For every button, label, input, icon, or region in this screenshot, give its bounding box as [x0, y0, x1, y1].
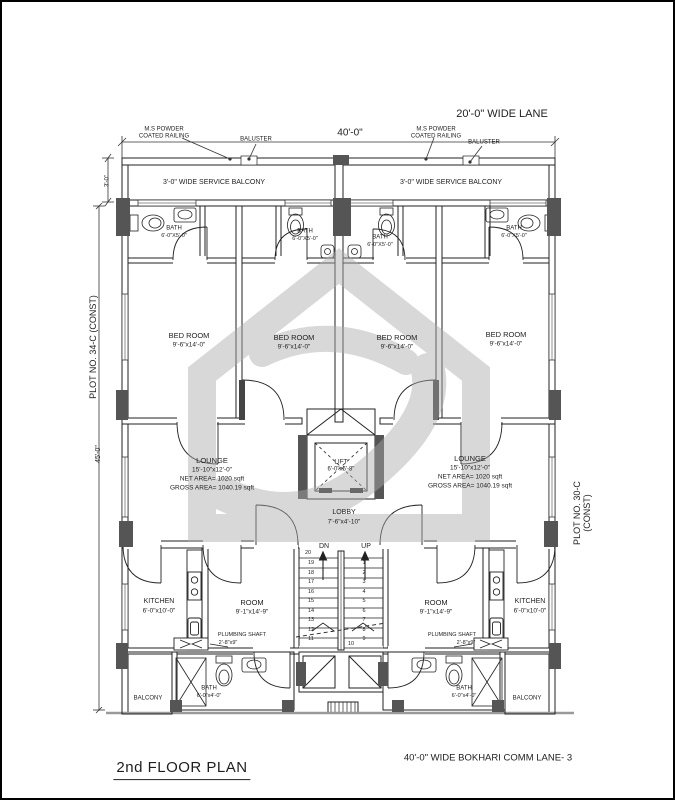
- stair-up-label: UP: [361, 543, 371, 551]
- dim-side-depth: 45'-0": [95, 445, 103, 463]
- wall-bath: [200, 206, 205, 258]
- room-label: ROOM: [240, 599, 263, 607]
- balcony-label: BALCONY: [134, 696, 163, 703]
- balcony-right-outline: [505, 652, 555, 714]
- wall-stair-right: [383, 548, 388, 654]
- lift-column: [298, 435, 307, 499]
- bath-dims: 6'-0"X5'-0": [161, 233, 187, 239]
- service-balcony-label-right: 3'-0" WIDE SERVICE BALCONY: [400, 179, 502, 187]
- balcony-label: BALCONY: [513, 696, 542, 703]
- wall-stair-left: [294, 548, 299, 654]
- lounge-dims: 15'-10"x12'-0": [192, 466, 232, 473]
- bedroom-dims: 9'-6"x14'-0": [490, 340, 523, 347]
- plumbing-shaft-label: PLUMBING SHAFT: [428, 632, 476, 638]
- stair-step-number: 8: [362, 626, 365, 632]
- stair-step-number: 20: [305, 550, 311, 556]
- bedroom-label: BED ROOM: [274, 334, 315, 342]
- bedroom-label: BED ROOM: [377, 334, 418, 342]
- wall-kitchen-left: [202, 548, 208, 650]
- railing-note-left: M.S POWDER COATED RAILING: [139, 126, 189, 139]
- bath-dims: 6'-0"x4'-0": [197, 693, 222, 699]
- stair-step-number: 17: [308, 579, 314, 585]
- bath-label: BATH: [166, 226, 182, 233]
- kitchen-label: KITCHEN: [515, 598, 546, 606]
- dim-width-label: 40'-0": [337, 127, 362, 138]
- balcony-left-outline: [122, 652, 172, 714]
- room-label: ROOM: [424, 599, 447, 607]
- wall-right: [549, 160, 555, 714]
- bedroom-dims: 9'-6"x14'-0": [381, 343, 414, 350]
- bath-label: BATH: [372, 235, 388, 242]
- bedroom-dims: 9'-6"x14'-0": [278, 343, 311, 350]
- stair-step-number: 15: [308, 598, 314, 604]
- bottom-road-label: 40'-0" WIDE BOKHARI COMM LANE- 3: [404, 754, 572, 765]
- floor-plan-sheet: 20'-0" WIDE LANE 40'-0" M.S POWDER COATE…: [0, 0, 675, 800]
- lobby-label: LOBBY: [332, 509, 355, 517]
- stair-step-number: 7: [362, 617, 365, 623]
- stair-step-number: 12: [308, 626, 314, 632]
- bath-label: BATH: [506, 226, 522, 233]
- wall-kitchen-right: [483, 548, 489, 650]
- lounge-net-area: NET AREA= 1020 sqft: [438, 473, 502, 480]
- stair-step-number: 14: [308, 607, 314, 613]
- bath-dims: 6'-0"X5'-0": [501, 233, 527, 239]
- lift-label: LIFT: [334, 458, 347, 465]
- plumbing-shaft-dims: 2'-8"x9": [457, 640, 476, 646]
- lounge-label: LOUNGE: [454, 455, 486, 463]
- stair-step-number: 16: [308, 588, 314, 594]
- stair-step-number: 6: [362, 607, 365, 613]
- bath-dims: 6'-0"X5'-0": [292, 236, 318, 242]
- plan-title: 2nd FLOOR PLAN: [113, 760, 250, 780]
- plan-linework: [2, 2, 675, 800]
- railing-note-right: M.S POWDER COATED RAILING: [411, 126, 461, 139]
- stair-step-number: 4: [362, 588, 365, 594]
- plumbing-shaft-dims: 2'-8"x9": [219, 640, 238, 646]
- wall-center: [335, 158, 343, 422]
- stair-step-number: 9: [362, 636, 365, 642]
- stair-step-number: 18: [308, 569, 314, 575]
- bath-label: BATH: [456, 686, 472, 693]
- lobby-dims: 7'-6"x4'-10": [328, 518, 361, 525]
- bath-dims: 6'-0"X5'-0": [367, 242, 393, 248]
- dim-balcony-depth: 3'-0": [105, 175, 112, 187]
- wall-bath: [398, 206, 403, 258]
- stair-step-number: 3: [362, 579, 365, 585]
- stair-landing: [299, 652, 383, 713]
- baluster-note-left: BALUSTER: [240, 137, 272, 144]
- bath-dims: 6'-0"x4'-0": [452, 693, 477, 699]
- service-balcony-label-left: 3'-0" WIDE SERVICE BALCONY: [163, 179, 265, 187]
- plot-label-left: PLOT NO. 34-C (CONST): [88, 295, 98, 399]
- room-dims: 9'-1"x14'-9": [236, 608, 269, 615]
- stair-step-number: 1: [362, 560, 365, 566]
- plumbing-shaft-label: PLUMBING SHAFT: [218, 632, 266, 638]
- kitchen-dims: 6'-0"x10'-0": [143, 607, 176, 614]
- bath-label: BATH: [297, 229, 313, 236]
- kitchen-dims: 6'-0"x10'-0": [514, 607, 547, 614]
- plot-label-right: PLOT NO. 30-C (CONST): [572, 468, 592, 559]
- lounge-gross-area: GROSS AREA= 1040.19 sqft: [428, 482, 512, 489]
- baluster-note-right: BALUSTER: [468, 140, 500, 147]
- stair-step-number: 19: [308, 560, 314, 566]
- bedroom-label: BED ROOM: [486, 331, 527, 339]
- stair-step-number: 2: [362, 569, 365, 575]
- bedroom-label: BED ROOM: [169, 332, 210, 340]
- lounge-dims: 15'-10"x12'-0": [450, 464, 490, 471]
- stair-step-number: 10: [348, 641, 354, 647]
- stair-step-number: 11: [308, 636, 314, 642]
- stair-dn-label: DN: [319, 543, 329, 551]
- lift-dims: 6'-0"x5'-8": [328, 467, 355, 474]
- wall-bath: [276, 206, 281, 258]
- bedroom-dims: 9'-6"x14'-0": [173, 341, 206, 348]
- lounge-net-area: NET AREA= 1020 sqft: [180, 475, 244, 482]
- top-lane-label: 20'-0" WIDE LANE: [456, 108, 548, 120]
- stair-step-number: 13: [308, 617, 314, 623]
- wall-left: [122, 160, 128, 714]
- kitchen-label: KITCHEN: [144, 598, 175, 606]
- room-dims: 9'-1"x14'-9": [420, 608, 453, 615]
- bath-label: BATH: [201, 686, 217, 693]
- lounge-gross-area: GROSS AREA= 1040.19 sqft: [170, 484, 254, 491]
- lounge-label: LOUNGE: [196, 457, 228, 465]
- stair-step-number: 5: [362, 598, 365, 604]
